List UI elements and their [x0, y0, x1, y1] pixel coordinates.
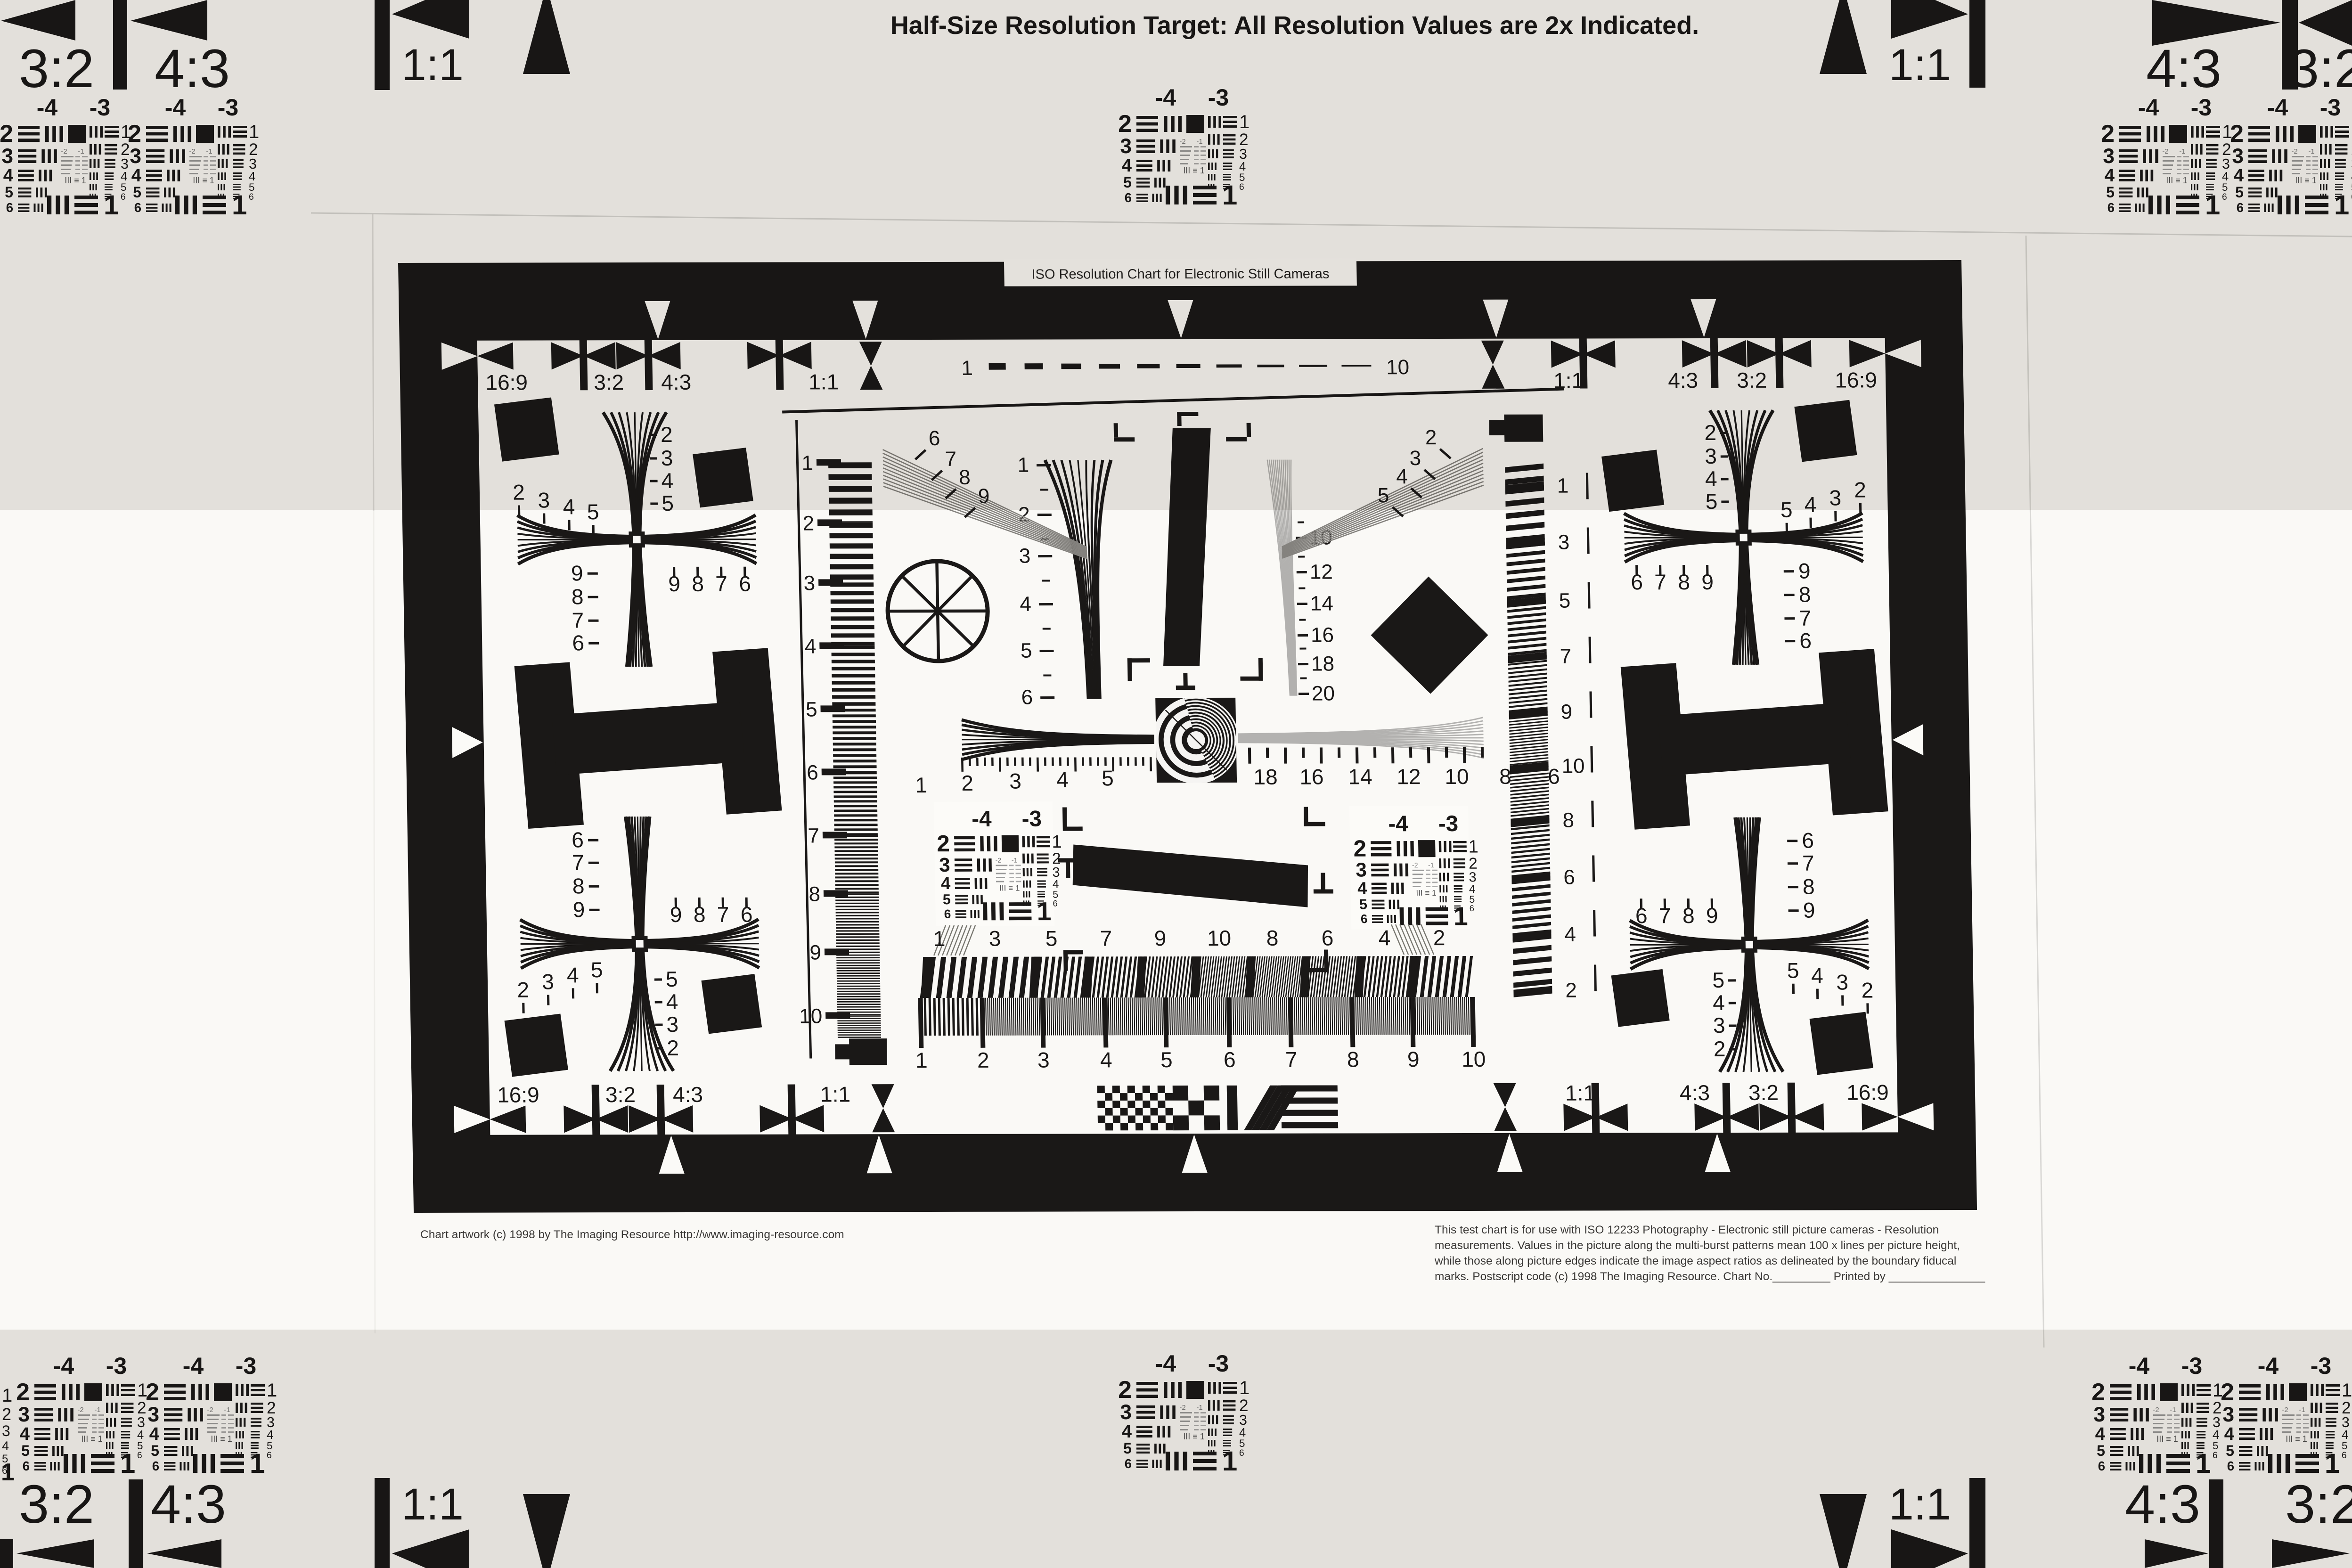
- svg-text:5: 5: [1021, 639, 1032, 662]
- svg-text:3: 3: [1356, 858, 1367, 881]
- svg-text:while those along picture edge: while those along picture edges indicate…: [1434, 1255, 1956, 1267]
- svg-text:5: 5: [1102, 766, 1114, 790]
- svg-text:4: 4: [1357, 878, 1367, 898]
- svg-text:7: 7: [572, 850, 584, 874]
- svg-text:10: 10: [799, 1004, 823, 1028]
- svg-text:5: 5: [1045, 926, 1057, 951]
- svg-text:2: 2: [1433, 925, 1445, 950]
- svg-text:measurements. Values in the pi: measurements. Values in the picture alon…: [1435, 1239, 1960, 1252]
- svg-text:9: 9: [571, 561, 583, 585]
- svg-text:1: 1: [933, 926, 945, 951]
- svg-text:4: 4: [567, 963, 579, 987]
- svg-text:6: 6: [1802, 828, 1814, 853]
- svg-text:4: 4: [666, 989, 678, 1014]
- svg-text:10: 10: [1561, 755, 1585, 778]
- svg-text:2: 2: [802, 512, 814, 535]
- svg-text:6: 6: [1548, 764, 1560, 789]
- svg-text:8: 8: [1798, 582, 1811, 607]
- svg-text:-2: -2: [1412, 862, 1418, 869]
- svg-text:4: 4: [1378, 925, 1390, 950]
- svg-text:5: 5: [1160, 1047, 1173, 1072]
- svg-text:12: 12: [1396, 764, 1421, 789]
- svg-text:10: 10: [1445, 764, 1469, 789]
- svg-text:6: 6: [1053, 898, 1058, 908]
- svg-text:2: 2: [977, 1048, 989, 1072]
- svg-text:8: 8: [1562, 809, 1574, 832]
- svg-text:8: 8: [1266, 926, 1278, 950]
- svg-text:8: 8: [571, 584, 583, 609]
- svg-text:8: 8: [1499, 764, 1511, 789]
- svg-text:This test chart is for use wit: This test chart is for use with ISO 1223…: [1435, 1224, 1939, 1236]
- svg-text:9: 9: [1560, 701, 1572, 724]
- svg-text:4: 4: [941, 874, 951, 893]
- svg-text:2: 2: [1353, 836, 1366, 862]
- svg-text:4: 4: [1713, 990, 1725, 1015]
- svg-text:9: 9: [809, 941, 821, 964]
- svg-text:2: 2: [517, 978, 529, 1002]
- svg-text:marks. Postscript code (c) 19: marks. Postscript code (c) 1998 The Imag…: [1435, 1270, 1985, 1283]
- svg-text:6: 6: [944, 907, 951, 921]
- svg-text:7: 7: [1560, 645, 1571, 668]
- svg-text:-1: -1: [1012, 857, 1018, 865]
- svg-text:2: 2: [961, 771, 973, 795]
- svg-text:1: 1: [1037, 897, 1052, 926]
- svg-text:7: 7: [808, 824, 819, 847]
- svg-text:5: 5: [1559, 589, 1570, 612]
- svg-text:3: 3: [666, 1012, 678, 1037]
- svg-text:1:1: 1:1: [820, 1082, 851, 1106]
- svg-text:1: 1: [915, 773, 927, 797]
- svg-text:-3: -3: [1438, 811, 1458, 836]
- svg-text:1: 1: [1468, 837, 1478, 857]
- svg-text:8: 8: [808, 882, 820, 906]
- svg-text:-1: -1: [1428, 862, 1434, 869]
- svg-text:3: 3: [1558, 531, 1569, 554]
- svg-text:6: 6: [1361, 912, 1368, 926]
- svg-text:8: 8: [572, 874, 584, 898]
- svg-text:16:9: 16:9: [1846, 1080, 1889, 1104]
- svg-text:5: 5: [1359, 897, 1368, 913]
- svg-text:7: 7: [1799, 606, 1811, 630]
- svg-text:3: 3: [1019, 545, 1030, 568]
- svg-text:5: 5: [806, 698, 817, 721]
- svg-text:6: 6: [1021, 686, 1033, 709]
- svg-text:5: 5: [1787, 958, 1799, 983]
- svg-text:1: 1: [1052, 832, 1062, 852]
- svg-text:6: 6: [1321, 925, 1333, 950]
- svg-text:3: 3: [988, 926, 1001, 951]
- svg-text:1:1: 1:1: [1565, 1080, 1596, 1105]
- svg-text:3: 3: [1713, 1013, 1725, 1037]
- svg-text:4: 4: [1564, 923, 1576, 946]
- svg-text:III ≡ 1: III ≡ 1: [1416, 889, 1437, 898]
- svg-text:4: 4: [1100, 1047, 1112, 1072]
- svg-text:4:3: 4:3: [1680, 1080, 1710, 1105]
- svg-text:-4: -4: [972, 807, 992, 832]
- svg-text:10: 10: [1462, 1047, 1486, 1071]
- svg-text:5: 5: [1712, 968, 1724, 992]
- svg-text:3: 3: [1836, 970, 1848, 995]
- svg-text:2: 2: [1713, 1037, 1725, 1061]
- svg-text:2: 2: [667, 1036, 679, 1060]
- svg-text:4: 4: [1056, 767, 1069, 792]
- svg-text:-2: -2: [996, 857, 1002, 865]
- svg-text:-4: -4: [1388, 811, 1409, 836]
- svg-text:8: 8: [1803, 874, 1815, 899]
- svg-text:4: 4: [804, 635, 816, 658]
- svg-text:6: 6: [1563, 866, 1575, 889]
- svg-text:5: 5: [590, 957, 603, 982]
- svg-text:Chart artwork (c) 1998 by The: Chart artwork (c) 1998 by The Imaging Re…: [420, 1228, 844, 1241]
- svg-text:20: 20: [1312, 682, 1335, 705]
- svg-text:9: 9: [1798, 559, 1811, 583]
- svg-text:3:2: 3:2: [1748, 1080, 1779, 1105]
- svg-text:6: 6: [572, 630, 584, 655]
- svg-text:4:3: 4:3: [673, 1082, 703, 1107]
- svg-text:14: 14: [1310, 592, 1334, 615]
- svg-text:6: 6: [807, 761, 818, 784]
- svg-text:9: 9: [1803, 898, 1815, 923]
- svg-text:6: 6: [1470, 903, 1475, 913]
- svg-text:7: 7: [572, 608, 584, 632]
- svg-text:18: 18: [1311, 652, 1335, 675]
- svg-text:7: 7: [1802, 851, 1814, 875]
- svg-text:5: 5: [943, 891, 951, 907]
- svg-text:1: 1: [1453, 901, 1468, 931]
- svg-text:4: 4: [1811, 964, 1823, 988]
- svg-text:3: 3: [803, 572, 815, 595]
- svg-text:3:2: 3:2: [605, 1082, 636, 1107]
- svg-text:5: 5: [666, 967, 678, 991]
- svg-text:3: 3: [1037, 1048, 1050, 1072]
- svg-text:16:9: 16:9: [497, 1083, 539, 1107]
- svg-text:6: 6: [1224, 1047, 1236, 1072]
- svg-text:18: 18: [1253, 765, 1278, 789]
- svg-text:2: 2: [1565, 979, 1577, 1002]
- svg-text:3: 3: [939, 854, 950, 876]
- svg-text:8: 8: [1347, 1047, 1359, 1071]
- svg-text:2: 2: [937, 831, 950, 857]
- svg-text:16: 16: [1299, 764, 1324, 789]
- svg-text:6: 6: [572, 827, 584, 852]
- svg-text:III ≡ 1: III ≡ 1: [999, 883, 1020, 892]
- svg-text:3: 3: [1009, 769, 1021, 793]
- svg-text:2: 2: [1861, 978, 1873, 1002]
- svg-text:9: 9: [1154, 926, 1166, 950]
- svg-text:1: 1: [915, 1048, 928, 1072]
- svg-text:-3: -3: [1021, 807, 1042, 832]
- svg-text:6: 6: [1799, 629, 1812, 653]
- svg-text:9: 9: [1407, 1047, 1420, 1071]
- svg-text:7: 7: [1100, 926, 1112, 950]
- svg-text:7: 7: [1285, 1047, 1298, 1072]
- svg-text:4: 4: [1020, 593, 1031, 616]
- svg-text:16: 16: [1311, 623, 1334, 646]
- svg-text:10: 10: [1207, 926, 1232, 950]
- svg-text:3: 3: [542, 969, 554, 994]
- svg-text:12: 12: [1309, 560, 1333, 583]
- svg-text:9: 9: [572, 897, 585, 922]
- svg-text:14: 14: [1348, 764, 1372, 789]
